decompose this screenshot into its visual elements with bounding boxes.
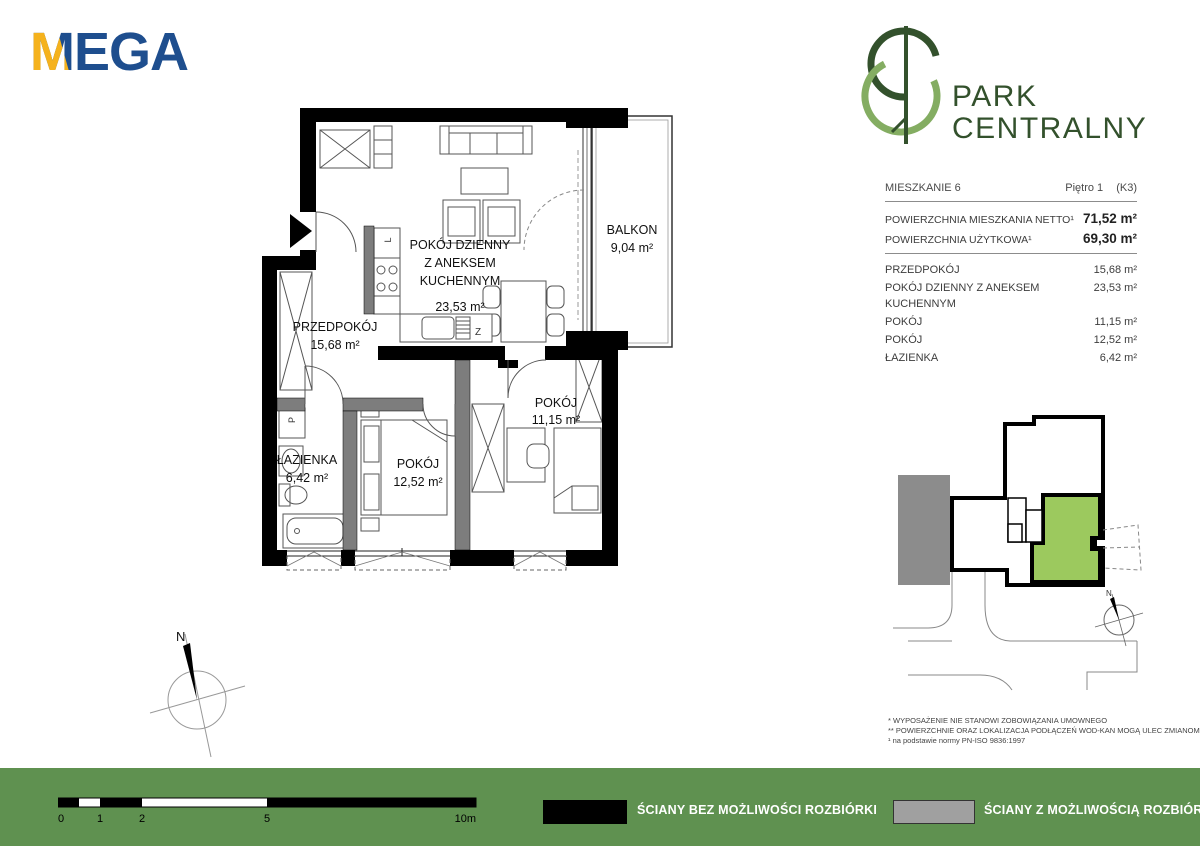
north-label: N (176, 629, 185, 644)
park-logo-line2: CENTRALNY (952, 112, 1147, 145)
room-area: 11,15 m² (1094, 315, 1137, 331)
bathroom-label: ŁAZIENKA (277, 453, 338, 467)
room-area-row: POKÓJ DZIENNY Z ANEKSEM KUCHENNYM 23,53 … (885, 281, 1137, 313)
room-name: POKÓJ DZIENNY Z ANEKSEM KUCHENNYM (885, 281, 1057, 313)
scale-tick: 0 (58, 813, 64, 825)
window (514, 551, 566, 570)
roads (893, 570, 1137, 690)
usable-area-label: POWIERZCHNIA UŻYTKOWA¹ (885, 234, 1032, 246)
bathtub (283, 514, 347, 548)
window (355, 548, 450, 570)
bedroom-wardrobe (472, 404, 504, 492)
balcony-area: 9,04 m² (611, 241, 653, 255)
floorplan-page: MEGA MEGA PARK CENTRALNY MIESZKANIE 6 Pi… (0, 0, 1200, 846)
divider (885, 253, 1137, 254)
room-area: 23,53 m² (1094, 281, 1137, 297)
scale-tick: 2 (139, 813, 145, 825)
armchair (483, 200, 520, 243)
toilet (279, 484, 307, 506)
balcony-glass-wall (578, 127, 591, 333)
wardrobe (320, 130, 370, 168)
bedroom-wardrobe (576, 352, 602, 422)
room-area: 6,42 m² (1100, 351, 1137, 367)
north-label: N (1106, 589, 1112, 598)
site-plan: N (890, 405, 1190, 705)
entrance-arrow-icon (290, 214, 312, 248)
living-room-label: POKÓJ DZIENNY (410, 237, 511, 252)
footnote: * WYPOSAŻENIE NIE STANOWI ZOBOWIĄZANIA U… (888, 716, 1200, 726)
sofa (440, 126, 532, 154)
armchair (443, 200, 480, 243)
tree-monogram-icon (860, 26, 949, 144)
park-centralny-logo: PARK CENTRALNY (860, 14, 1160, 149)
unit-number: MIESZKANIE 6 (885, 182, 961, 194)
footnote: ¹ na podstawie normy PN-ISO 9836:1997 (888, 736, 1200, 746)
room-name: ŁAZIENKA (885, 351, 1057, 367)
park-logo-line1: PARK (952, 80, 1037, 113)
room-name: PRZEDPOKÓJ (885, 263, 1057, 279)
unit-info-panel: MIESZKANIE 6 Piętro 1 (K3) POWIERZCHNIA … (885, 182, 1137, 369)
dining-table (501, 281, 546, 342)
bedroom-small-label: POKÓJ (535, 395, 577, 410)
net-area-value: 71,52 m² (1083, 211, 1137, 226)
single-bed (554, 428, 601, 513)
legend-label-partition-wall: ŚCIANY Z MOŻLIWOŚCIĄ ROZBIÓRKI (984, 803, 1200, 817)
living-room-label: KUCHENNYM (420, 274, 501, 288)
room-area: 12,52 m² (1094, 333, 1137, 349)
mega-logo: MEGA MEGA (30, 12, 240, 82)
divider (885, 201, 1137, 202)
room-area-row: ŁAZIENKA 6,42 m² (885, 351, 1137, 367)
room-name: POKÓJ (885, 333, 1057, 349)
scale-tick: 5 (264, 813, 270, 825)
window (287, 551, 341, 570)
bedroom-big-label: POKÓJ (397, 456, 439, 471)
entry-door (316, 212, 356, 252)
room-name: POKÓJ (885, 315, 1057, 331)
bedroom-small-area: 11,15 m² (532, 413, 580, 427)
scale-tick-labels: 0 1 2 5 10m (58, 813, 476, 825)
dishwasher-symbol: Z (475, 327, 481, 338)
hall-label: PRZEDPOKÓJ (293, 319, 378, 334)
fridge-symbol: L (383, 237, 393, 242)
footnote: ** POWIERZCHNIE ORAZ LOKALIZACJA PODŁĄCZ… (888, 726, 1200, 736)
scale-bar: 0 1 2 5 10m (58, 794, 488, 830)
room-area-row: PRZEDPOKÓJ 15,68 m² (885, 263, 1137, 279)
dishwasher (456, 317, 470, 339)
legend-label-structural-wall: ŚCIANY BEZ MOŻLIWOŚCI ROZBIÓRKI (637, 803, 877, 817)
bedroom-big-area: 12,52 m² (393, 475, 442, 489)
usable-area-value: 69,30 m² (1083, 231, 1137, 246)
balcony-door-swing (524, 190, 584, 250)
coffee-table (461, 168, 508, 194)
net-area-label: POWIERZCHNIA MIESZKANIA NETTO¹ (885, 214, 1074, 226)
footnotes: * WYPOSAŻENIE NIE STANOWI ZOBOWIĄZANIA U… (888, 716, 1200, 746)
living-room-area: 23,53 m² (435, 300, 484, 314)
floor-label: Piętro 1 (1065, 182, 1103, 194)
apartment-floor-plan: L Z P (248, 95, 700, 580)
bathroom-area: 6,42 m² (286, 471, 328, 485)
balcony-label: BALKON (607, 223, 658, 237)
room-area-row: POKÓJ 12,52 m² (885, 333, 1137, 349)
scale-tick: 10m (455, 813, 476, 825)
nightstand (361, 518, 379, 531)
north-compass-icon: N (130, 615, 270, 765)
scale-tick: 1 (97, 813, 103, 825)
room-area-row: POKÓJ 11,15 m² (885, 315, 1137, 331)
desk-chair (527, 444, 549, 468)
washer-symbol: P (287, 417, 297, 423)
dashed-balconies (1103, 525, 1141, 570)
living-room-label: Z ANEKSEM (424, 256, 496, 270)
legend-swatch-partition-wall (893, 800, 975, 824)
room-area: 15,68 m² (1094, 263, 1137, 279)
legend-swatch-structural-wall (543, 800, 627, 824)
building-label: (K3) (1116, 182, 1137, 194)
cabinet (374, 126, 392, 168)
hall-area: 15,68 m² (310, 338, 359, 352)
site-compass-icon: N (1095, 589, 1143, 646)
neighbor-building (898, 475, 950, 585)
windows (287, 548, 566, 570)
